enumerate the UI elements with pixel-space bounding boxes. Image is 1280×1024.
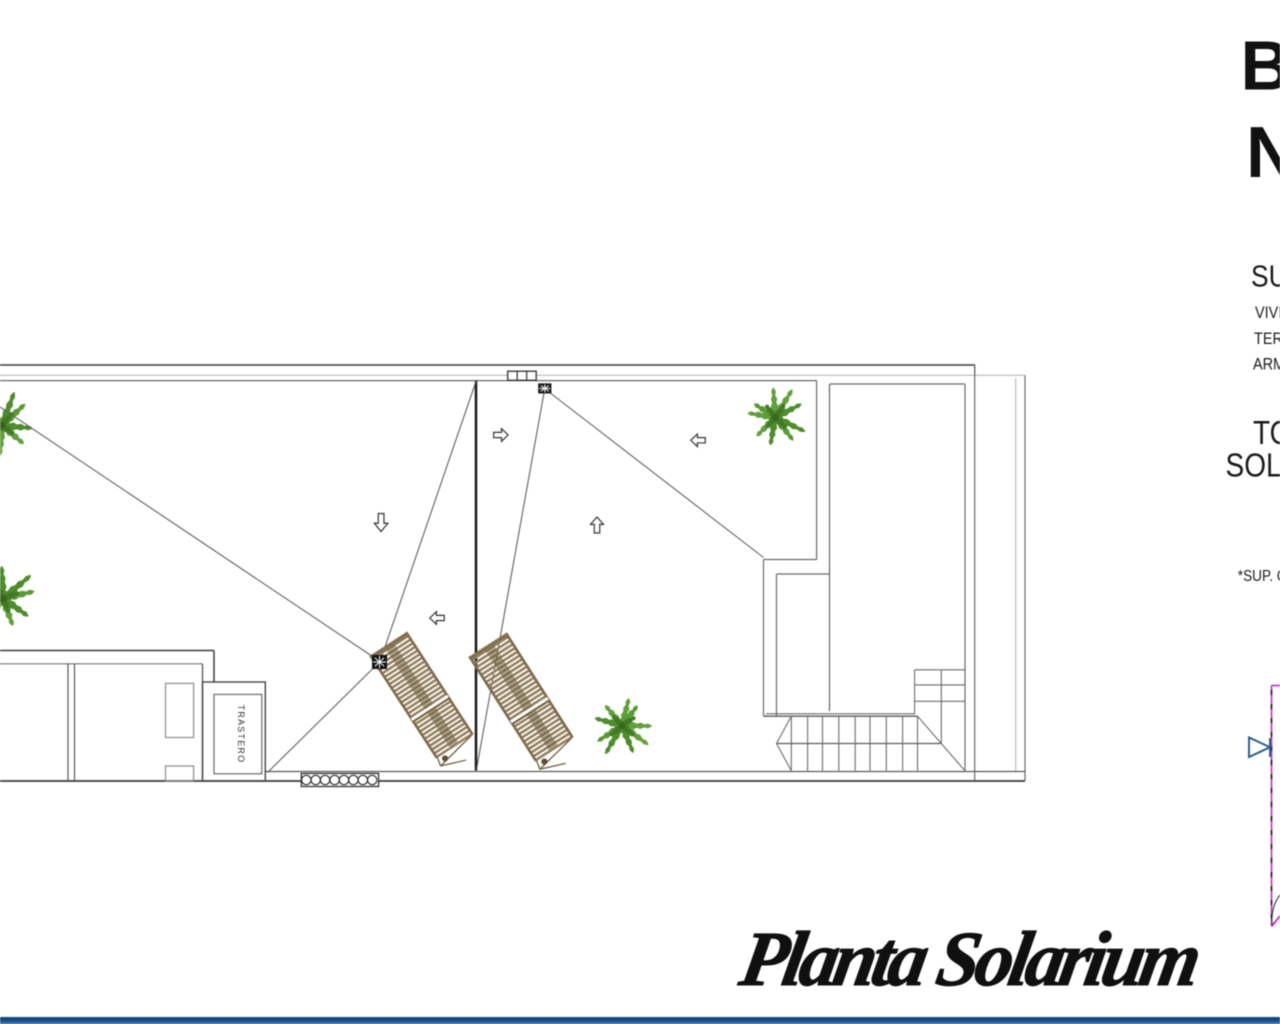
svg-text:ARMA: ARMA xyxy=(1253,355,1280,373)
svg-text:*SUP. CO: *SUP. CO xyxy=(1238,568,1280,585)
svg-text:TERR: TERR xyxy=(1254,330,1280,348)
svg-text:SUP: SUP xyxy=(1251,260,1280,294)
svg-text:B: B xyxy=(1241,27,1280,105)
svg-text:VIVIE: VIVIE xyxy=(1255,304,1280,322)
svg-text:TOT: TOT xyxy=(1253,415,1280,452)
svg-text:N: N xyxy=(1246,113,1280,193)
svg-text:SOLA: SOLA xyxy=(1226,447,1280,484)
